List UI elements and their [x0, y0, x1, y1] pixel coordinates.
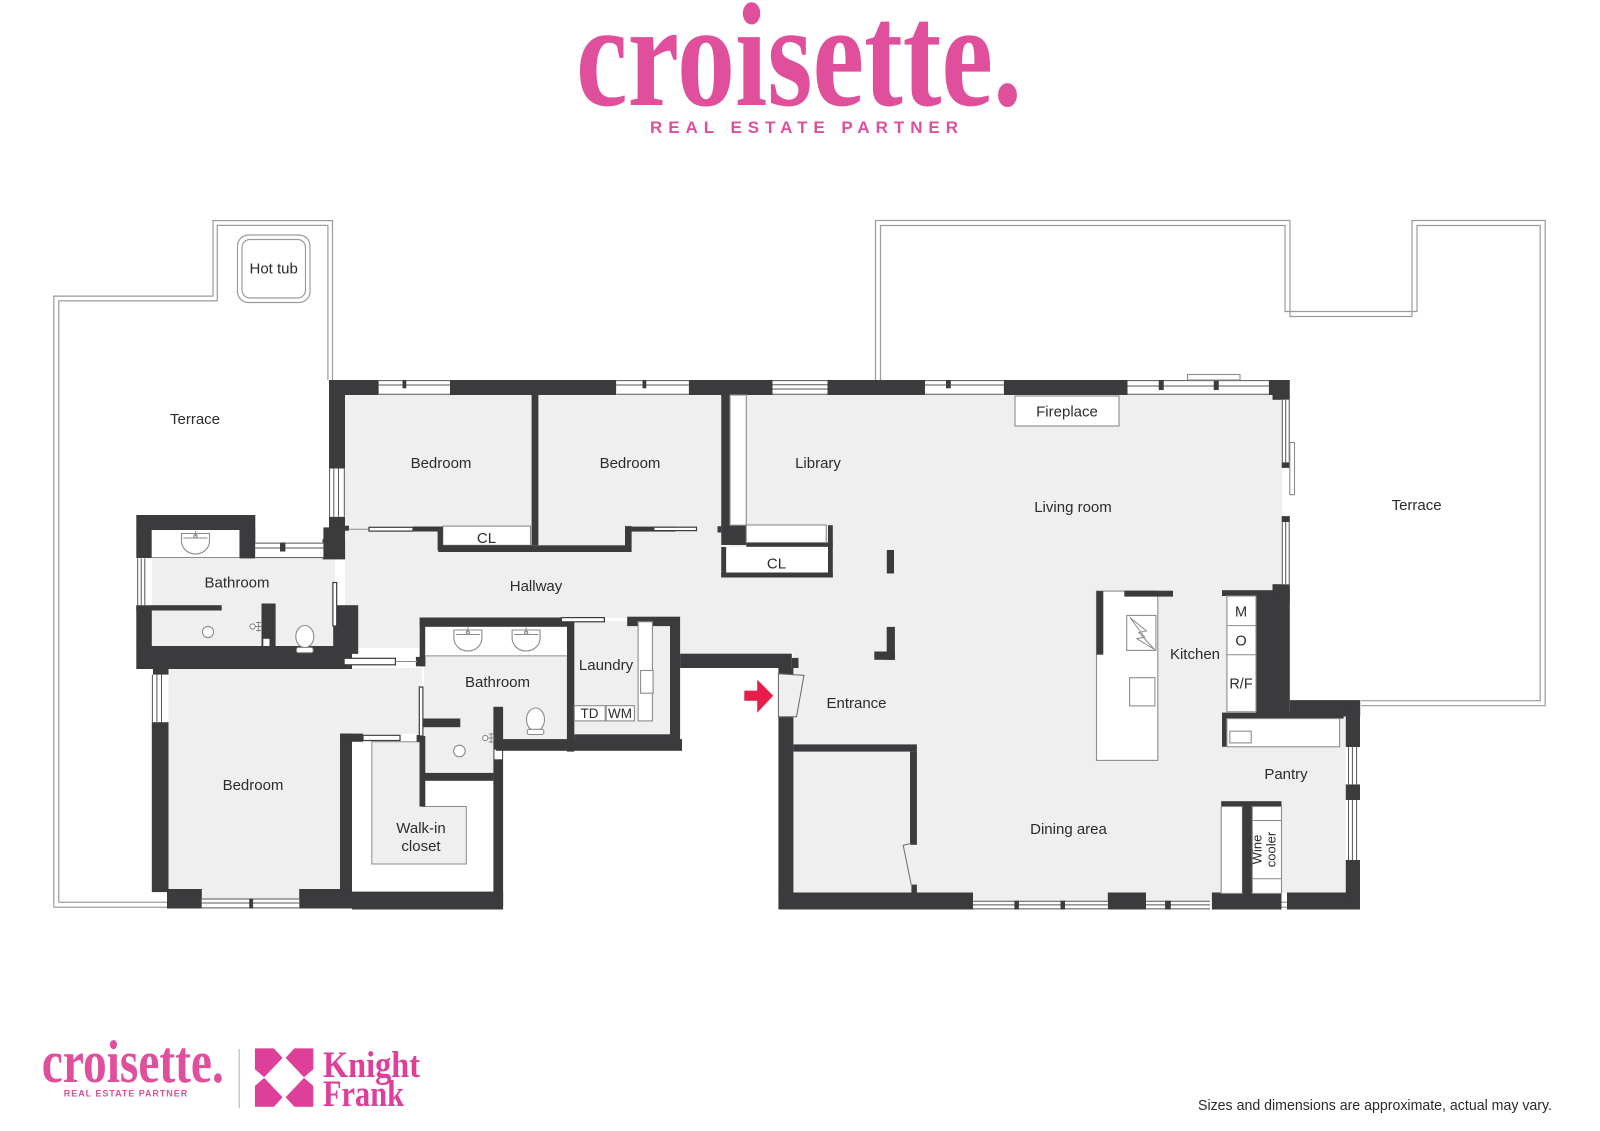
svg-text:Bedroom: Bedroom: [411, 455, 472, 472]
svg-text:Laundry: Laundry: [579, 657, 634, 674]
svg-text:R/F: R/F: [1229, 677, 1253, 693]
svg-text:Sizes and dimensions are appro: Sizes and dimensions are approximate, ac…: [1198, 1097, 1552, 1114]
svg-text:cooler: cooler: [1264, 831, 1279, 867]
svg-text:WM: WM: [608, 706, 632, 721]
svg-text:Bedroom: Bedroom: [600, 455, 661, 472]
svg-text:Living room: Living room: [1034, 499, 1112, 516]
svg-text:REAL ESTATE PARTNER: REAL ESTATE PARTNER: [64, 1089, 188, 1099]
svg-text:Hallway: Hallway: [510, 578, 563, 595]
svg-text:Kitchen: Kitchen: [1170, 646, 1220, 663]
svg-text:Dining area: Dining area: [1030, 821, 1107, 838]
svg-text:Entrance: Entrance: [826, 695, 886, 712]
svg-text:Bathroom: Bathroom: [204, 575, 269, 592]
svg-text:Wine: Wine: [1250, 835, 1265, 865]
svg-text:Bedroom: Bedroom: [223, 777, 284, 794]
svg-text:Bathroom: Bathroom: [465, 674, 530, 691]
svg-text:CL: CL: [767, 556, 786, 573]
svg-text:Terrace: Terrace: [170, 411, 220, 428]
svg-text:closet: closet: [401, 838, 441, 855]
svg-text:Hot tub: Hot tub: [250, 261, 298, 278]
svg-text:O: O: [1235, 634, 1246, 650]
svg-text:Fireplace: Fireplace: [1036, 404, 1098, 421]
svg-text:Walk-in: Walk-in: [396, 820, 445, 837]
svg-text:M: M: [1235, 605, 1247, 621]
svg-text:REAL ESTATE PARTNER: REAL ESTATE PARTNER: [650, 118, 958, 137]
svg-text:croisette.: croisette.: [42, 1029, 224, 1095]
svg-text:Library: Library: [795, 455, 841, 472]
svg-text:Frank: Frank: [323, 1074, 404, 1115]
svg-text:Terrace: Terrace: [1392, 497, 1442, 514]
svg-text:TD: TD: [581, 706, 599, 721]
svg-text:Pantry: Pantry: [1264, 766, 1308, 783]
svg-text:CL: CL: [477, 530, 496, 547]
